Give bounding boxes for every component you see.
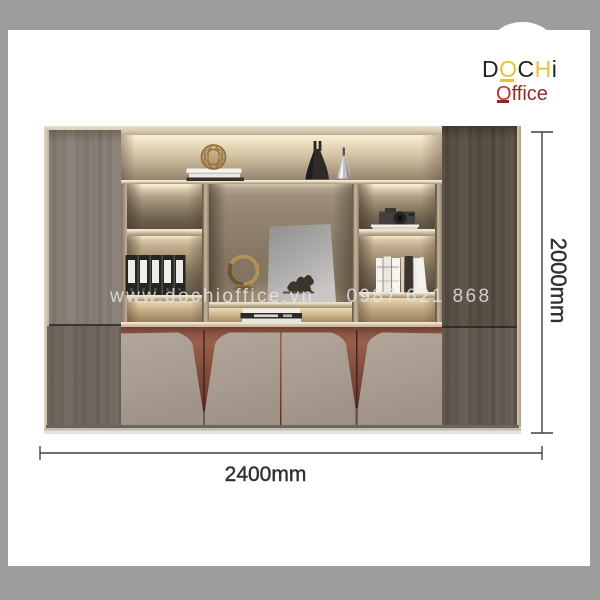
- svg-text:2000mm: 2000mm: [546, 238, 571, 324]
- svg-text:2400mm: 2400mm: [225, 463, 307, 486]
